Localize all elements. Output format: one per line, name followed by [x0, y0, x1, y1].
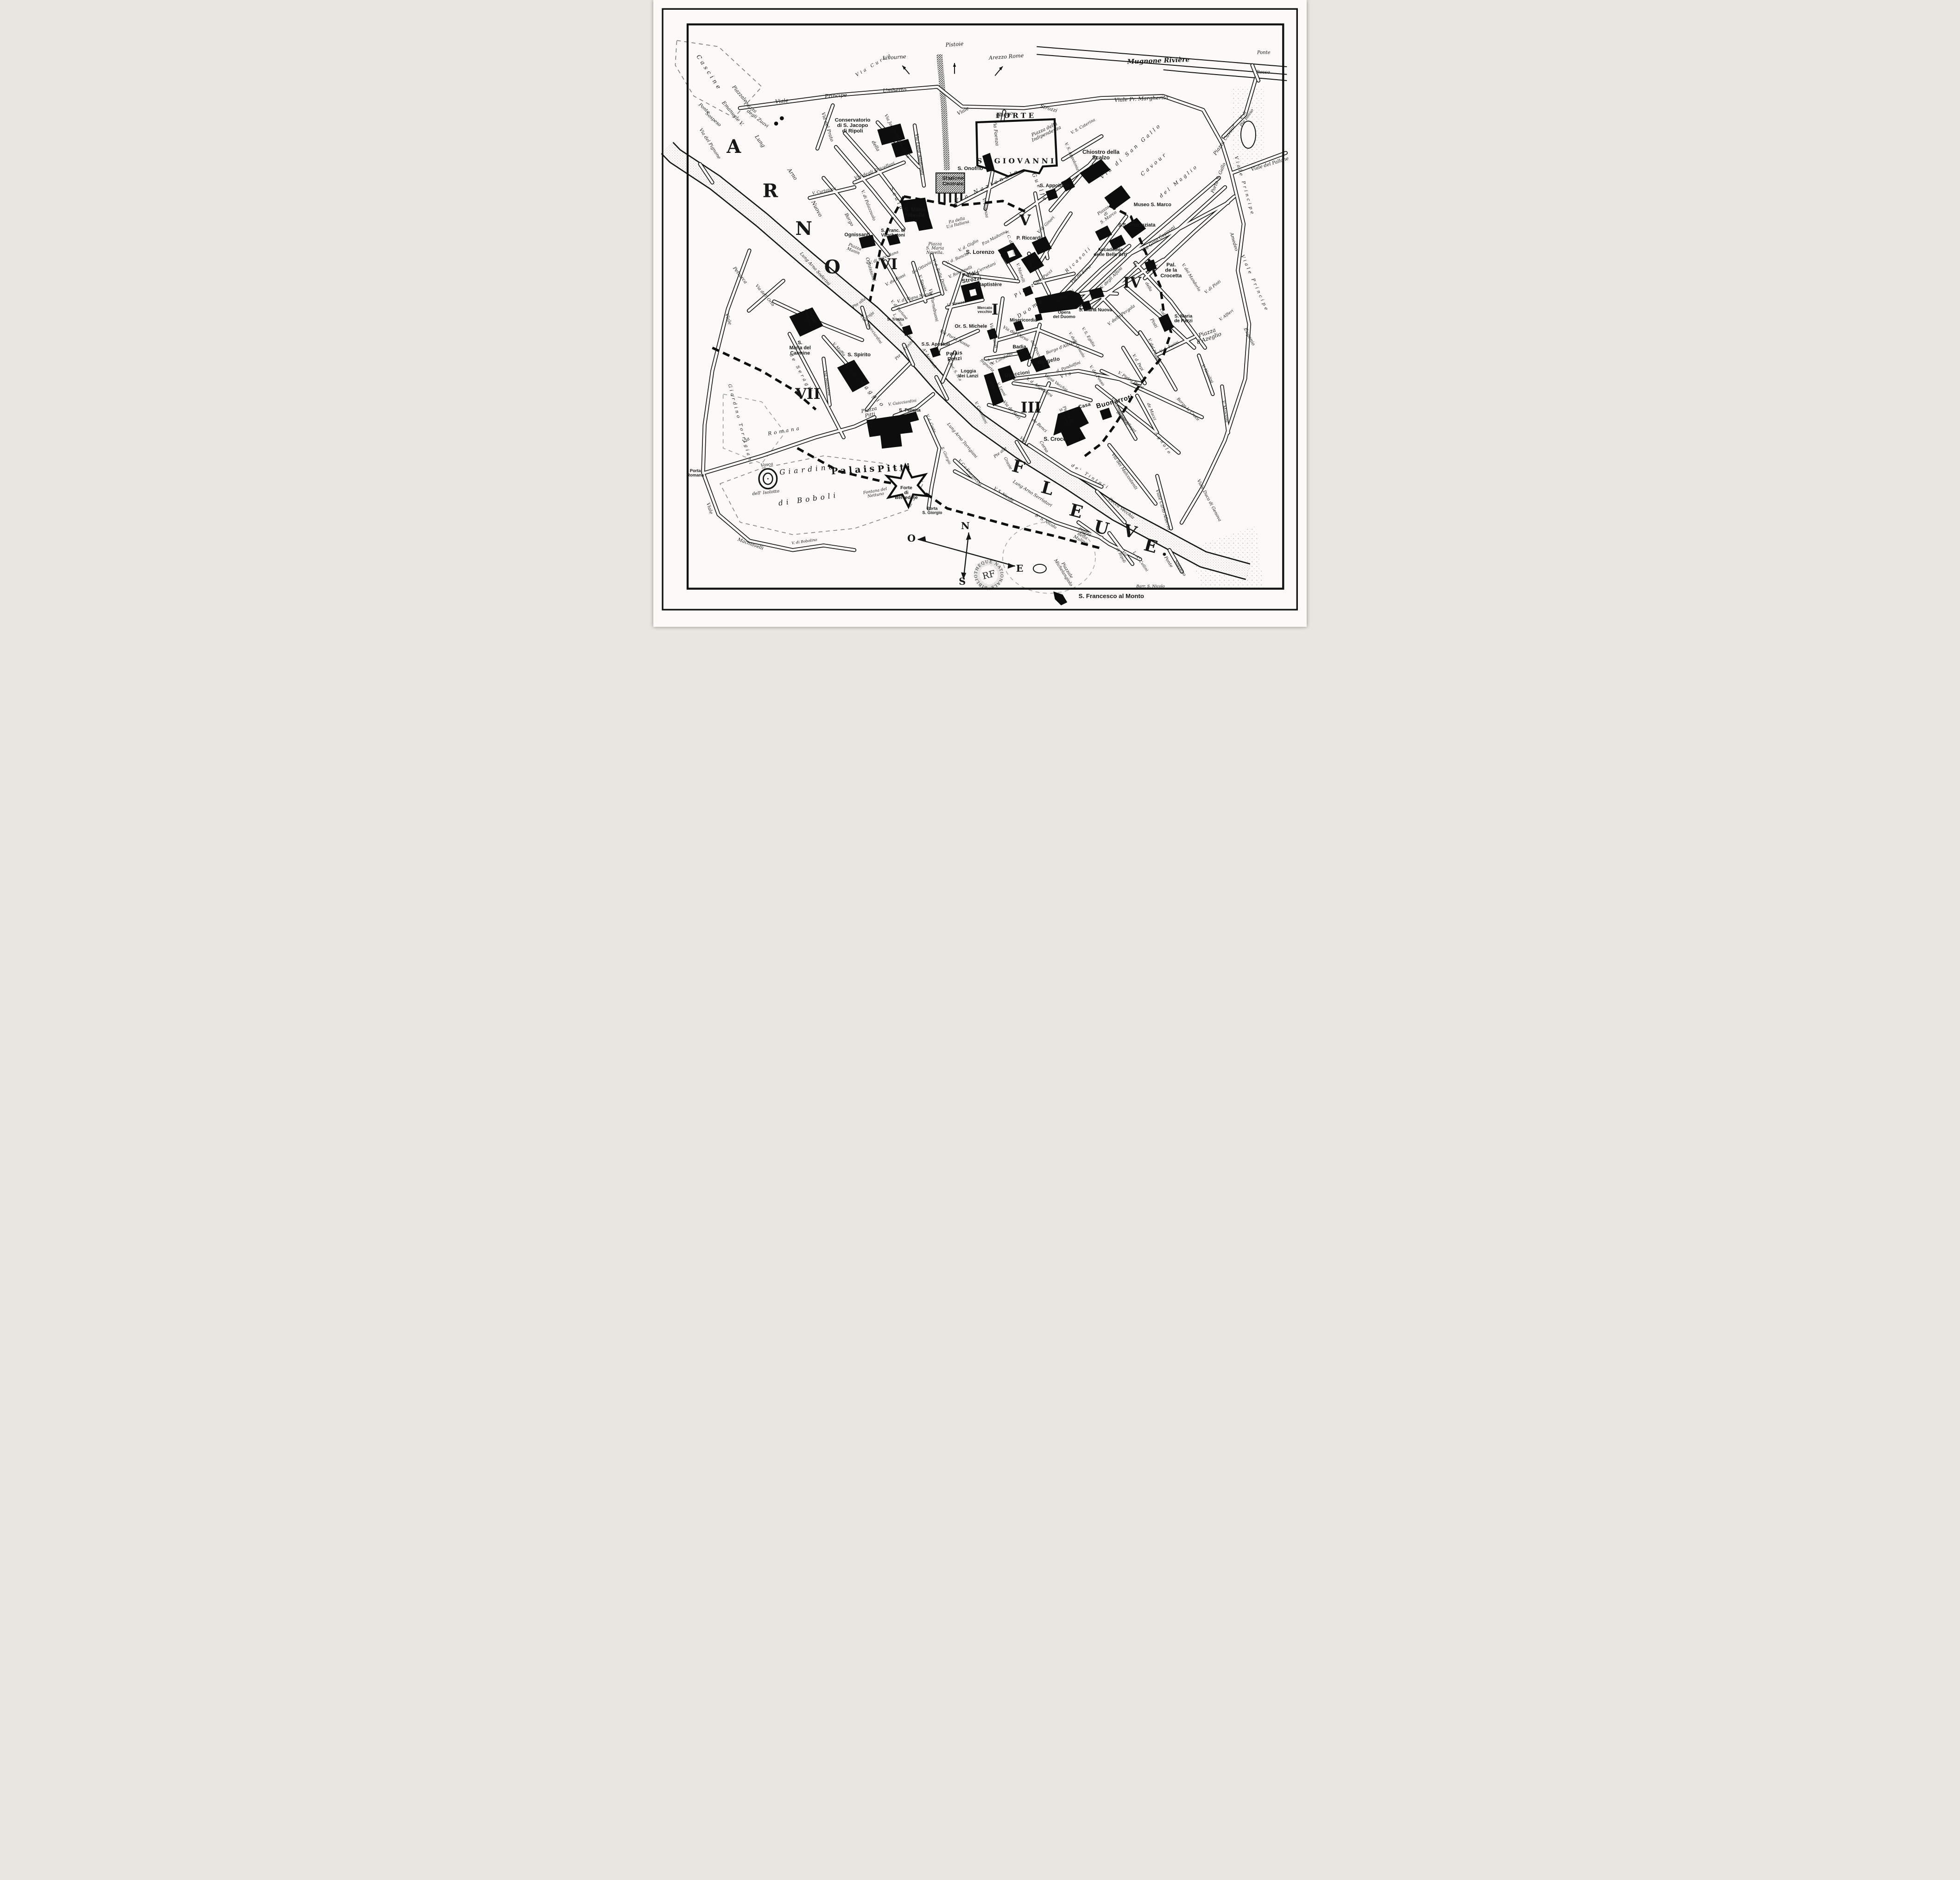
map-label: V. C.a Scarpuccia: [957, 458, 982, 487]
map-label: V. Leoni: [996, 382, 1007, 397]
map-label: V. S. Appolonia: [1064, 142, 1080, 171]
map-label: Fontana del Nettuno: [863, 487, 888, 499]
map-label: Pistoie: [945, 41, 964, 48]
map-label: Porta Romana: [687, 468, 704, 477]
map-label: Sospeso: [1174, 559, 1187, 577]
map-label: Viale Duca di Genova: [1196, 479, 1222, 522]
map-label: Loggia dei Lanzi: [959, 369, 979, 379]
map-label: V. d. Costa: [925, 414, 937, 433]
map-label: Arezzo Rome: [989, 53, 1024, 61]
map-label: Via de Neri: [1002, 400, 1022, 421]
map-label: Sospeso: [704, 111, 722, 127]
map-label: V. d. Farini: [1159, 340, 1179, 353]
map-label: P.za del Carmine: [803, 307, 816, 326]
map-label: Cavour: [1140, 151, 1169, 177]
map-label: Via Luigi Alamanni: [915, 133, 925, 175]
map-label: Via di Ripoli: [1115, 545, 1130, 563]
map-label: Romana: [767, 425, 802, 436]
map-label: Viale: [706, 502, 714, 515]
map-label: Piazza della Indipendenza: [1029, 120, 1062, 143]
map-label: V. d. Pepi: [1132, 353, 1144, 372]
map-label: Viale Principe: [1240, 254, 1270, 312]
map-label: Or. S. Michele: [955, 323, 987, 328]
map-label: Via dell' Orto: [755, 284, 775, 307]
map-label: V. S. Nicolo: [993, 486, 1014, 503]
map-label: Viale del Pallone: [1251, 156, 1290, 172]
map-label: N: [795, 219, 819, 239]
map-label: Opera del Duomo: [1053, 310, 1075, 319]
map-label: V. de Fossi: [885, 273, 906, 287]
map-label: Pal. de la Crocetta: [1160, 262, 1182, 278]
map-label: P. Riccardi: [1017, 235, 1042, 240]
map-label: Ugaccioni: [1004, 369, 1030, 378]
map-label: V. d. Banchi: [946, 252, 969, 265]
map-label: Lung: [754, 134, 766, 149]
map-label: Via: [1019, 436, 1026, 443]
map-label: Scala: [889, 186, 905, 212]
map-label: Piazza di S. Marco: [1094, 203, 1118, 225]
map-label: Baptistère: [978, 282, 1002, 287]
map-label: Viale Pr. Margherita: [1114, 95, 1169, 103]
map-label: E: [1068, 501, 1090, 523]
map-label: V. Condotta: [991, 351, 1013, 366]
labels-layer: LivournePistoieArezzo RomeFORTES. GIOVAN…: [653, 0, 1307, 627]
map-label: Via Maggio: [844, 363, 886, 409]
map-label: de Benci: [1031, 418, 1048, 433]
map-label: Conservatorio di S. Jacopo di Ripoli: [835, 117, 871, 133]
map-label: V. Pietra Piana: [1117, 371, 1144, 390]
map-label: Mercato vecchio: [977, 306, 992, 314]
map-label: S. GIOVANNI: [977, 157, 1056, 164]
map-label: Chiostro della Scalzo: [1082, 149, 1119, 161]
map-label: Mugnone Rivière: [1127, 56, 1190, 65]
map-label: Via del Corso: [1002, 325, 1029, 342]
map-label: S. Maria Nuova: [1079, 307, 1112, 312]
map-label: V. C. de Nelli: [1005, 230, 1018, 255]
map-label: Ognissanti: [844, 232, 870, 237]
map-label: V. S. Caterina: [1070, 118, 1096, 135]
map-label: S.S. Annunziata: [1118, 222, 1155, 227]
map-label: V. del Mandorlo: [1181, 263, 1201, 292]
map-label: S. Onofrio: [958, 165, 983, 171]
map-label: Via Nazionale: [954, 168, 1021, 205]
map-label: F: [1010, 457, 1032, 479]
map-label: Piazza S. Maria Novella.: [926, 242, 944, 255]
map-label: Via del Prato: [821, 112, 835, 142]
map-label: A: [727, 137, 747, 157]
map-label: S. Giorgio: [941, 446, 952, 465]
map-label: Piazza Cavour: [1213, 124, 1237, 156]
map-label: S. Appolonio: [1040, 183, 1070, 188]
map-label: Via Mazzetta: [823, 370, 831, 396]
map-label: V. S. Egidia: [1081, 327, 1096, 347]
map-label: V: [1019, 213, 1031, 228]
map-label: V. Spada: [918, 274, 927, 292]
map-label: Umberto: [883, 87, 907, 94]
map-label: V. di Pinti: [1204, 279, 1221, 295]
map-label: Porta S. Gallo: [1210, 162, 1227, 194]
map-label: Palais: [831, 463, 878, 476]
map-label: IV: [1123, 275, 1141, 290]
map-label: Barr. S. Nicolo: [1136, 584, 1164, 588]
map-label: del: [1045, 293, 1052, 300]
map-label: Viale Carlo Alberto: [1155, 489, 1172, 530]
map-canvas: BIBLIOTHÈQUE NATIONALE RF LivournePistoi…: [653, 0, 1307, 627]
map-label: Viale Principe: [1234, 156, 1256, 216]
map-label: Amedeo: [1229, 232, 1239, 252]
map-viewport: BIBLIOTHÈQUE NATIONALE RF LivournePistoi…: [653, 0, 1307, 627]
map-label: S: [959, 576, 966, 586]
map-label: Via del Pignone: [699, 127, 722, 160]
map-label: V. d. Ginori: [1037, 215, 1056, 234]
map-label: S. Maria Novella: [904, 207, 926, 218]
map-label: S. Spirito: [847, 352, 871, 357]
map-label: Stazione Centrale: [942, 176, 964, 187]
map-label: S. Maria de Pazzi: [1174, 314, 1192, 323]
map-label: Rosso: [1256, 70, 1270, 75]
map-label: Via Pucci: [1036, 269, 1053, 284]
map-label: O: [824, 258, 847, 277]
map-label: V. d. Belle Donne: [931, 259, 948, 292]
map-label: Via degli Oricellari: [854, 161, 895, 181]
map-label: N: [961, 521, 970, 531]
map-label: Ponte: [1257, 50, 1271, 55]
map-label: V. d. Vigna Nuova: [897, 291, 933, 304]
map-label: S.S. Apostoli: [922, 341, 950, 346]
map-label: Giardino: [779, 463, 837, 476]
map-label: Agnolo: [1154, 431, 1173, 456]
map-label: VI: [879, 257, 898, 272]
map-label: E: [1016, 563, 1024, 573]
map-label: V. di Palazzuolo: [860, 189, 876, 221]
map-label: R: [763, 181, 784, 201]
map-label: Via Gino Capponi: [1141, 225, 1176, 253]
map-label: Piazza di S. Croce: [1058, 405, 1074, 425]
map-label: V. Guicciardini: [888, 398, 917, 406]
map-label: Piazza Pitti: [860, 406, 878, 419]
map-label: della: [1144, 281, 1153, 292]
map-label: Cascine: [695, 54, 723, 92]
map-label: Strozzi: [1040, 103, 1058, 113]
map-label: V. Manzoni: [1221, 400, 1229, 423]
map-label: V. Alfieri: [1219, 309, 1234, 322]
map-label: Piazza d'Azeglio: [1194, 326, 1222, 345]
map-label: Vasca: [760, 461, 773, 467]
map-label: V. Gori: [1026, 256, 1034, 269]
map-label: Borgo Allegri: [1116, 410, 1137, 434]
map-label: Viale: [956, 106, 970, 116]
map-label: Duomo: [1016, 297, 1045, 319]
map-label: Via dei Malcontenti: [1111, 452, 1138, 490]
map-label: Misericordia: [1010, 317, 1037, 322]
map-label: E.: [1142, 536, 1176, 561]
map-label: di Boboli: [778, 491, 839, 507]
map-label: Principe: [825, 92, 847, 99]
map-label: Piazzale Michelangiolo: [1053, 556, 1077, 587]
map-label: Via Calzaioli: [989, 322, 998, 348]
map-label: L: [1039, 478, 1061, 500]
map-label: V. di Pte Rosso: [1235, 106, 1254, 127]
map-label: Badia: [1012, 344, 1026, 349]
map-label: Colonna: [1159, 308, 1170, 325]
map-label: Accademia delle Belle Arti: [1094, 247, 1126, 257]
map-label: V. Faenza: [981, 198, 989, 218]
map-label: Viale: [775, 98, 789, 105]
map-label: Viale: [724, 313, 733, 325]
map-label: V. Castellani: [974, 401, 988, 424]
map-label: Lung Arno Torrigiani: [946, 422, 978, 459]
map-label: Emanuele V.: [721, 100, 745, 127]
map-label: Pte alla: [852, 297, 866, 309]
map-label: de' Tintori: [1070, 463, 1110, 490]
map-label: U: [1092, 517, 1117, 539]
map-label: Via Faenza: [992, 120, 999, 146]
map-label: Zecca Vecchia: [1108, 497, 1135, 520]
map-label: Via: [1132, 260, 1138, 268]
map-label: III: [1021, 400, 1041, 416]
map-label: della: [871, 140, 880, 152]
map-label: Pte S. Trinita: [894, 339, 915, 360]
map-label: V. del Fosso: [1088, 365, 1105, 387]
map-label: Museo S. Marco: [1134, 202, 1171, 207]
map-label: V. Ninna: [986, 376, 996, 391]
map-label: V. di Bobolino: [791, 538, 817, 545]
map-label: Via Curva: [855, 52, 893, 77]
map-label: Forte di Belvedere: [895, 485, 917, 500]
map-label: Porta S. Giorgio: [922, 506, 942, 515]
map-label: Via Jacopo di Diaccetto: [884, 114, 910, 159]
map-label: V. degli Alfani: [1100, 266, 1123, 290]
map-label: P.a della U.a Italiana: [945, 215, 970, 229]
map-label: del Maglio: [1158, 164, 1199, 199]
map-label: V. Curtatone: [812, 186, 836, 195]
map-label: Arno: [786, 167, 798, 181]
map-label: O: [907, 533, 916, 543]
map-label: Piazza Manin: [846, 242, 862, 255]
map-label: B° S. Nicolo: [1034, 513, 1057, 530]
map-label: Casa: [1078, 401, 1091, 410]
map-label: P.a Ottavia: [911, 260, 932, 275]
map-label: Piazza della Mulina: [1073, 526, 1093, 545]
map-label: de Macci: [1146, 402, 1157, 421]
map-label: V. Martelli: [1016, 263, 1026, 283]
map-label: V: [1121, 521, 1144, 543]
map-label: V. Maffia: [832, 341, 846, 357]
map-label: A° Acciaioli: [922, 347, 937, 369]
map-label: P.za Madonna: [981, 229, 1008, 246]
map-label: Borgo: [844, 212, 855, 227]
map-label: dell' Isolotto: [752, 489, 780, 496]
map-label: S. Felicita: [899, 408, 921, 412]
map-label: degli Zuavi: [746, 109, 770, 129]
map-label: Borgo d'Albizzi: [1045, 340, 1077, 355]
map-label: Pinti: [1150, 317, 1158, 328]
map-label: S. Croce: [1043, 436, 1066, 442]
map-label: L. A. Guicciardini: [860, 314, 883, 344]
map-label: Pitti: [877, 462, 913, 473]
map-label: Giardino Torrigiani: [727, 384, 754, 467]
map-label: V. Strozzi: [947, 300, 966, 308]
map-label: I: [992, 302, 999, 317]
map-label: Machiavelli: [737, 537, 765, 551]
map-label: S. Franc. di Vanchetoni: [881, 228, 905, 238]
map-label: S. Lorenzo: [966, 249, 994, 255]
map-label: VII: [795, 386, 820, 402]
map-label: V. del Pilastri: [1147, 338, 1161, 364]
map-label: V. Nicolini: [1201, 364, 1214, 384]
map-label: V. Bufalini: [1055, 288, 1075, 303]
map-label: S. Francesco al Monto: [1079, 593, 1144, 599]
map-label: Eugenio: [1243, 327, 1256, 347]
map-label: Petrarca: [732, 266, 748, 285]
map-label: Borgo la Croce: [1176, 397, 1200, 422]
map-label: Nuovo: [810, 200, 823, 217]
